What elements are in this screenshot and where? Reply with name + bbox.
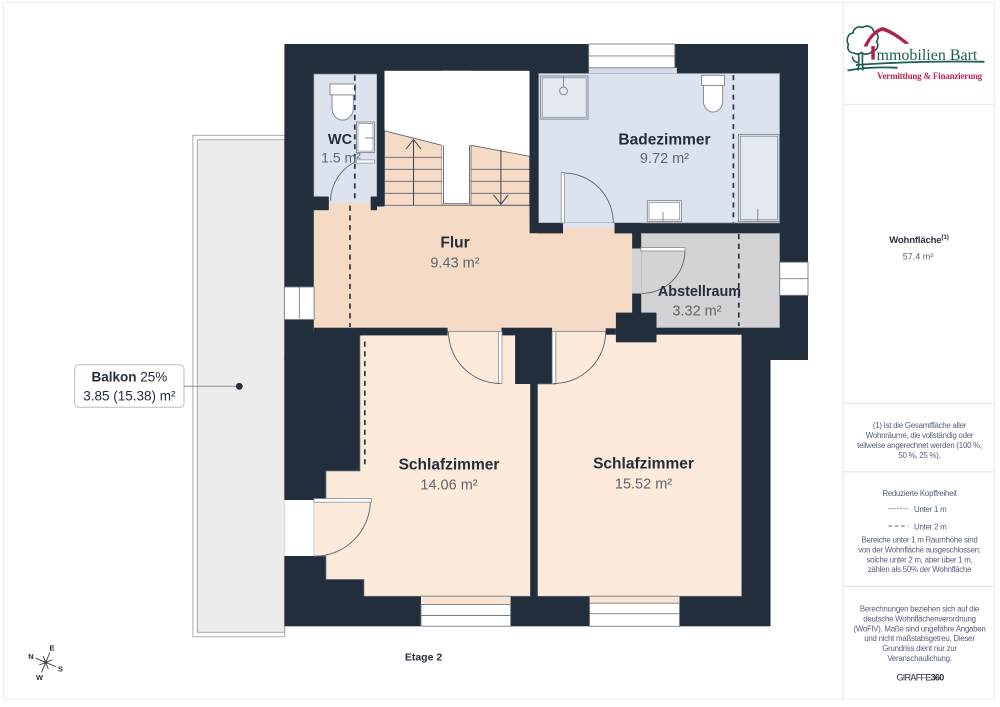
- svg-text:Berechnungen beziehen sich auf: Berechnungen beziehen sich auf die: [860, 605, 980, 614]
- svg-text:(WoFlV). Maße sind ungefähre A: (WoFlV). Maße sind ungefähre Angaben: [853, 624, 985, 633]
- svg-text:Schlafzimmer: Schlafzimmer: [399, 457, 500, 474]
- svg-text:Unter 1 m: Unter 1 m: [914, 505, 947, 514]
- svg-text:Etage 2: Etage 2: [405, 652, 443, 664]
- svg-text:solche unter 2 m, aber über 1: solche unter 2 m, aber über 1 m,: [866, 555, 972, 564]
- svg-text:Reduzierte Kopffreiheit: Reduzierte Kopffreiheit: [882, 489, 957, 498]
- svg-text:W: W: [36, 673, 44, 682]
- svg-text:Wohnräume, die vollständig ode: Wohnräume, die vollständig oder: [866, 431, 974, 440]
- svg-text:(1) Ist die Gesamtfläche aller: (1) Ist die Gesamtfläche aller: [873, 421, 967, 430]
- svg-text:Vermittlung & Finanzierung: Vermittlung & Finanzierung: [877, 71, 983, 81]
- svg-text:N: N: [28, 652, 33, 661]
- svg-text:14.06 m²: 14.06 m²: [420, 478, 477, 494]
- svg-text:Schlafzimmer: Schlafzimmer: [593, 456, 694, 473]
- svg-text:Badezimmer: Badezimmer: [618, 132, 710, 149]
- svg-text:E: E: [49, 643, 54, 652]
- svg-text:WC: WC: [328, 132, 353, 148]
- svg-text:Grundriss dient nur zur: Grundriss dient nur zur: [882, 644, 957, 653]
- svg-text:Balkon 25%: Balkon 25%: [92, 370, 168, 385]
- svg-text:Wohnfläche(1): Wohnfläche(1): [889, 234, 949, 246]
- svg-text:Veranschaulichung.: Veranschaulichung.: [887, 654, 951, 663]
- svg-text:9.72 m²: 9.72 m²: [640, 151, 689, 167]
- svg-text:und nicht maßstabsgetreu. Dies: und nicht maßstabsgetreu. Dieser: [864, 634, 975, 643]
- svg-text:Unter 2 m: Unter 2 m: [914, 523, 947, 532]
- svg-text:15.52 m²: 15.52 m²: [615, 477, 672, 493]
- svg-text:3.85 (15.38) m²: 3.85 (15.38) m²: [83, 389, 176, 404]
- svg-text:1.5 m²: 1.5 m²: [321, 150, 361, 166]
- svg-text:Abstellraum: Abstellraum: [658, 284, 741, 300]
- svg-text:57.4 m²: 57.4 m²: [903, 252, 934, 262]
- svg-text:teilweise angerechnet werden (: teilweise angerechnet werden (100 %,: [857, 441, 982, 450]
- svg-text:S: S: [58, 664, 63, 673]
- svg-text:zählen als 50% der Wohnfläche: zählen als 50% der Wohnfläche: [868, 565, 972, 574]
- svg-text:3.32 m²: 3.32 m²: [672, 304, 721, 320]
- svg-text:Flur: Flur: [440, 235, 469, 252]
- svg-text:GIRAFFE360: GIRAFFE360: [896, 673, 944, 683]
- svg-text:9.43 m²: 9.43 m²: [430, 256, 479, 272]
- svg-text:Bereiche unter 1 m Raumhöhe si: Bereiche unter 1 m Raumhöhe sind: [861, 536, 977, 545]
- svg-text:50 %, 25 %).: 50 %, 25 %).: [898, 451, 940, 460]
- svg-text:deutsche Wohnflächenverordnung: deutsche Wohnflächenverordnung: [863, 614, 976, 623]
- svg-text:von der Wohnfläche ausgeschlos: von der Wohnfläche ausgeschlossen;: [858, 545, 981, 554]
